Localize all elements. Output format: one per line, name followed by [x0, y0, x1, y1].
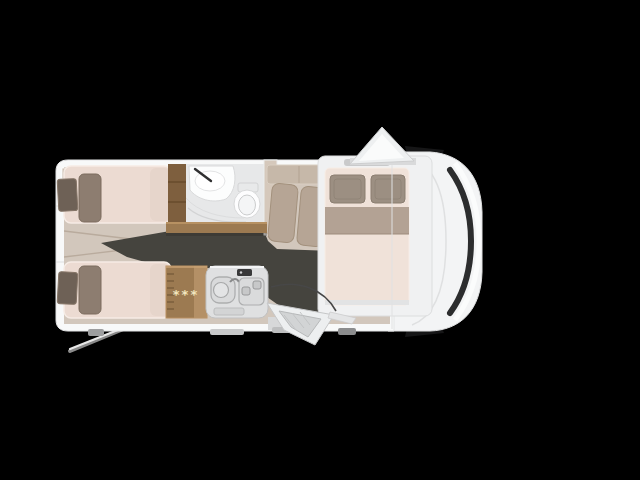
freezer-star-rating: ***: [173, 287, 199, 302]
sink-bowl: [214, 283, 229, 298]
pillow: [57, 272, 78, 305]
control-knob: [240, 271, 242, 273]
chassis-block-1: [88, 329, 104, 336]
kitchen-drawer: [214, 308, 244, 315]
chassis-block-3: [338, 328, 356, 335]
bolster-cushion: [79, 174, 101, 222]
kitchen-block: [206, 266, 268, 318]
pillow: [57, 178, 78, 211]
folded-blanket: [325, 207, 409, 234]
burner-2: [253, 281, 261, 289]
fridge-cabinet: ***: [166, 266, 207, 318]
washroom-shelf: [166, 222, 267, 236]
chassis-block-2: [210, 329, 244, 335]
toilet-seat: [239, 195, 256, 215]
shelf-shadow: [166, 233, 267, 236]
bolster-cushion: [79, 266, 101, 314]
hob-control-panel: [237, 269, 252, 276]
rear-bed-top: [57, 166, 171, 223]
motorhome-floorplan-image: ***: [0, 0, 640, 480]
rear-bed-bottom: [57, 262, 171, 318]
bed-foot-shade: [325, 300, 409, 305]
mattress-shade: [150, 168, 170, 221]
burner-1: [242, 287, 250, 295]
floorplan-canvas: ***: [0, 0, 640, 480]
shelf-partition: [168, 164, 186, 224]
seat-cushion-left: [268, 183, 299, 243]
drop-down-bed: [318, 156, 432, 316]
